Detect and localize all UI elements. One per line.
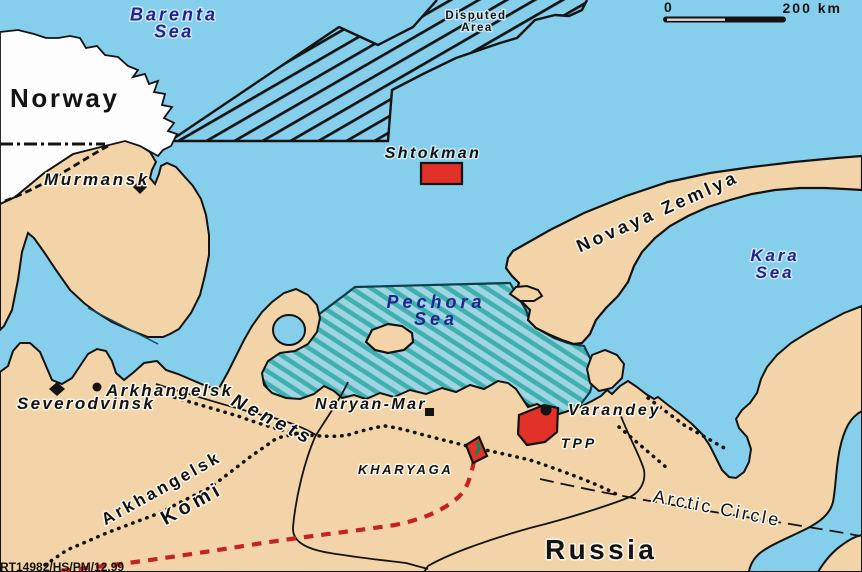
svg-text:Area: Area: [461, 22, 493, 34]
svg-text:0: 0: [664, 0, 672, 15]
svg-text:Russia: Russia: [545, 534, 657, 565]
svg-text:200 km: 200 km: [783, 0, 842, 16]
svg-text:Shtokman: Shtokman: [385, 145, 482, 162]
svg-text:Varandey: Varandey: [568, 402, 661, 419]
svg-text:TPP: TPP: [561, 435, 597, 451]
svg-text:Disputed: Disputed: [445, 10, 506, 22]
svg-text:Arkhangelsk: Arkhangelsk: [105, 381, 233, 400]
svg-text:KHARYAGA: KHARYAGA: [358, 462, 454, 477]
svg-text:RT14982/HS/PM/12.99: RT14982/HS/PM/12.99: [0, 560, 124, 572]
svg-text:Naryan-Mar: Naryan-Mar: [315, 396, 427, 413]
svg-text:Murmansk: Murmansk: [44, 170, 150, 189]
svg-text:Sea: Sea: [756, 263, 795, 282]
svg-text:Sea: Sea: [414, 309, 458, 329]
svg-text:Norway: Norway: [10, 83, 120, 113]
svg-text:Sea: Sea: [154, 22, 194, 42]
